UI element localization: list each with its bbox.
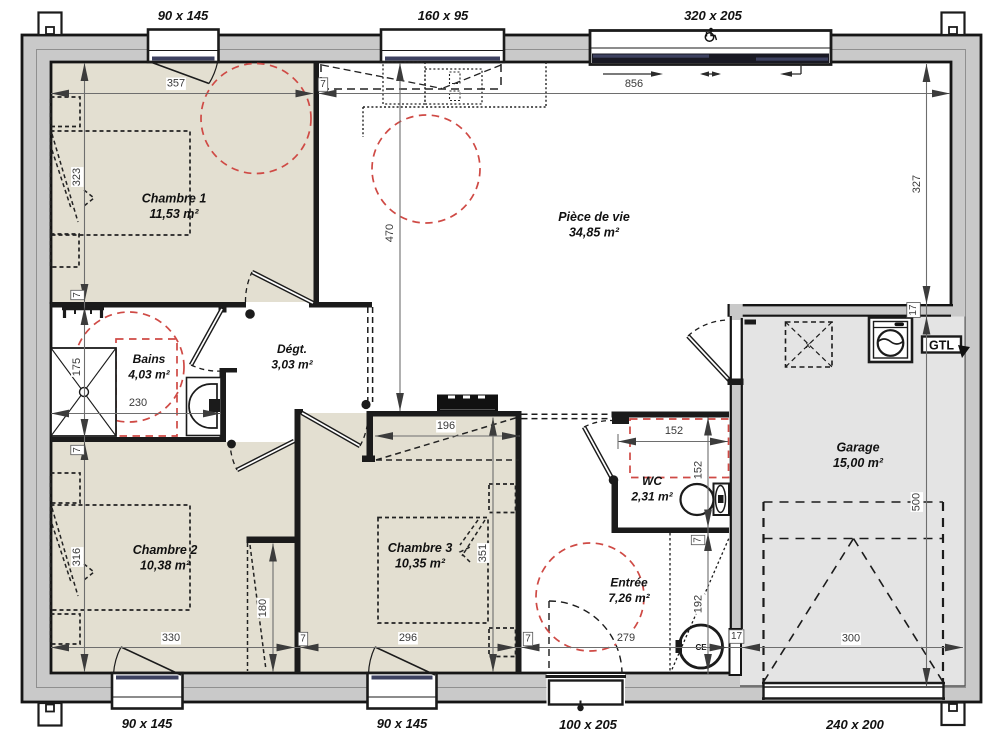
svg-text:17: 17 — [908, 304, 919, 316]
svg-text:7: 7 — [693, 537, 704, 543]
svg-text:7: 7 — [72, 447, 83, 453]
svg-text:Chambre 3: Chambre 3 — [388, 541, 453, 555]
svg-text:240 x 200: 240 x 200 — [825, 717, 885, 732]
svg-text:323: 323 — [71, 168, 83, 186]
svg-text:90 x 145: 90 x 145 — [377, 716, 428, 731]
svg-text:WC: WC — [642, 474, 662, 488]
svg-text:7: 7 — [72, 292, 83, 298]
svg-text:7: 7 — [320, 79, 326, 90]
svg-text:100 x 205: 100 x 205 — [559, 717, 618, 732]
svg-text:300: 300 — [842, 633, 860, 645]
svg-text:152: 152 — [693, 461, 705, 479]
svg-text:17: 17 — [731, 631, 743, 642]
svg-text:500: 500 — [911, 493, 923, 511]
svg-text:327: 327 — [911, 175, 923, 193]
svg-text:320 x 205: 320 x 205 — [684, 8, 743, 23]
svg-text:10,38 m²: 10,38 m² — [140, 559, 191, 573]
svg-text:230: 230 — [129, 397, 147, 409]
svg-text:7: 7 — [525, 634, 531, 645]
svg-text:Bains: Bains — [133, 352, 166, 366]
svg-text:7: 7 — [300, 634, 306, 645]
svg-text:152: 152 — [665, 425, 683, 437]
svg-text:192: 192 — [693, 595, 705, 613]
svg-text:Pièce de vie: Pièce de vie — [558, 210, 630, 224]
svg-text:196: 196 — [437, 420, 455, 432]
svg-text:316: 316 — [71, 548, 83, 566]
svg-text:34,85 m²: 34,85 m² — [569, 226, 620, 240]
svg-text:279: 279 — [617, 632, 635, 644]
svg-text:330: 330 — [162, 632, 180, 644]
svg-text:Chambre 1: Chambre 1 — [142, 192, 207, 206]
svg-text:4,03 m²: 4,03 m² — [127, 368, 170, 382]
svg-text:856: 856 — [625, 78, 643, 90]
svg-text:90 x 145: 90 x 145 — [122, 716, 173, 731]
svg-text:357: 357 — [167, 78, 185, 90]
svg-text:Garage: Garage — [836, 441, 879, 455]
svg-text:3,03 m²: 3,03 m² — [271, 358, 313, 372]
svg-text:11,53 m²: 11,53 m² — [149, 207, 199, 221]
svg-text:GTL: GTL — [929, 339, 954, 353]
svg-text:x: x — [806, 340, 811, 350]
svg-text:175: 175 — [71, 358, 83, 376]
svg-text:296: 296 — [399, 632, 417, 644]
svg-text:180: 180 — [257, 599, 269, 617]
svg-text:Dégt.: Dégt. — [277, 342, 307, 356]
svg-text:Chambre 2: Chambre 2 — [133, 543, 198, 557]
svg-text:7,26 m²: 7,26 m² — [608, 591, 650, 605]
svg-text:Entrée: Entrée — [610, 576, 648, 590]
svg-text:90 x 145: 90 x 145 — [158, 8, 209, 23]
svg-text:15,00 m²: 15,00 m² — [833, 456, 884, 470]
svg-text:2,31 m²: 2,31 m² — [630, 490, 673, 504]
svg-text:160 x 95: 160 x 95 — [418, 8, 469, 23]
svg-text:351: 351 — [477, 544, 489, 562]
svg-text:470: 470 — [384, 224, 396, 242]
svg-text:10,35 m²: 10,35 m² — [395, 557, 446, 571]
